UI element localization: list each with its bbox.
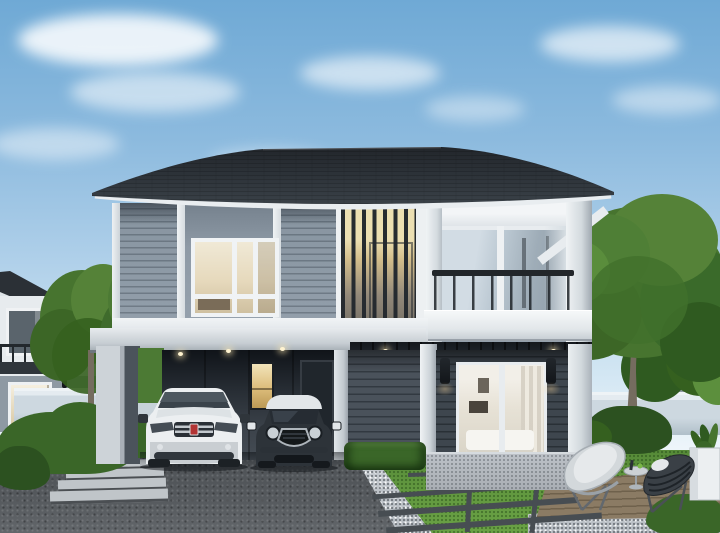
lounge-chair-dark <box>644 455 694 512</box>
outdoor-furniture <box>548 418 720 518</box>
white-suv <box>138 388 250 472</box>
carport-downlight <box>226 349 231 353</box>
carport-downlight <box>280 347 285 351</box>
wall-sconce-left <box>440 358 450 384</box>
living-room-console <box>469 401 488 413</box>
wall-sconce-right <box>546 358 556 384</box>
lounge-chair-silver <box>564 442 625 510</box>
carport-column <box>96 346 140 464</box>
glass-door-center-frame <box>499 365 505 460</box>
carport-downlight <box>178 352 183 356</box>
black-mini-car <box>247 395 341 472</box>
house-render-scene <box>0 0 720 533</box>
hedge-box-front <box>344 442 426 470</box>
roof-shingle-texture <box>92 147 614 204</box>
living-room-wall-art <box>478 378 489 392</box>
living-room-glass-door <box>456 362 547 463</box>
cars <box>138 380 348 472</box>
